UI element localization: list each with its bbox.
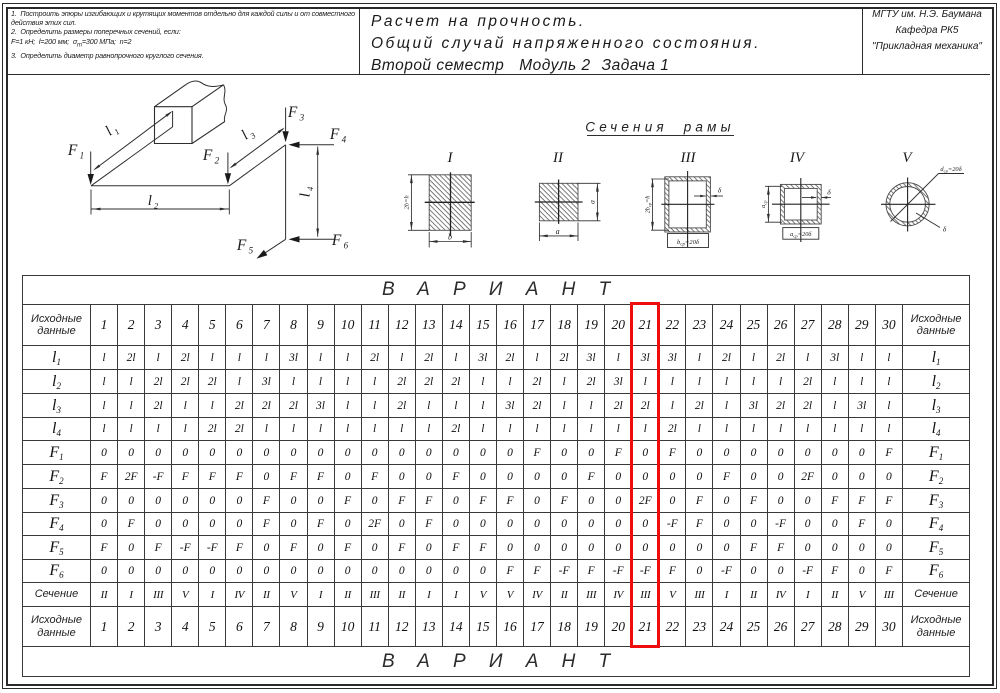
svg-text:aср: aср bbox=[760, 200, 768, 208]
svg-text:III: III bbox=[680, 150, 697, 166]
svg-text:b: b bbox=[448, 233, 452, 242]
svg-text:F 6: F 6 bbox=[331, 232, 349, 251]
svg-text:F 2: F 2 bbox=[202, 147, 220, 166]
svg-text:II: II bbox=[552, 150, 564, 166]
svg-text:δ: δ bbox=[827, 188, 831, 197]
svg-text:F 1: F 1 bbox=[67, 142, 84, 161]
svg-text:δ: δ bbox=[718, 186, 722, 195]
svg-text:bср=20δ: bср=20δ bbox=[677, 239, 700, 248]
svg-text:dср=20δ: dср=20δ bbox=[940, 166, 962, 174]
svg-text:δ: δ bbox=[943, 225, 947, 234]
svg-text:a: a bbox=[588, 200, 597, 204]
svg-text:l 2: l 2 bbox=[148, 193, 159, 211]
svg-text:l 3: l 3 bbox=[239, 124, 258, 144]
svg-text:I: I bbox=[447, 150, 454, 166]
svg-text:F 4: F 4 bbox=[329, 126, 347, 145]
svg-text:l 1: l 1 bbox=[103, 120, 122, 140]
svg-text:F 5: F 5 bbox=[236, 237, 254, 256]
svg-text:l 4: l 4 bbox=[298, 186, 316, 197]
svg-text:IV: IV bbox=[789, 150, 806, 166]
svg-text:a: a bbox=[556, 227, 560, 236]
svg-text:2b=h: 2b=h bbox=[403, 195, 410, 209]
svg-text:F 3: F 3 bbox=[287, 104, 305, 123]
svg-text:Сечения рамы: Сечения рамы bbox=[585, 120, 734, 135]
svg-text:V: V bbox=[902, 150, 913, 166]
svg-text:aср=20δ: aср=20δ bbox=[790, 231, 812, 239]
svg-text:2bср=h: 2bср=h bbox=[644, 196, 652, 214]
